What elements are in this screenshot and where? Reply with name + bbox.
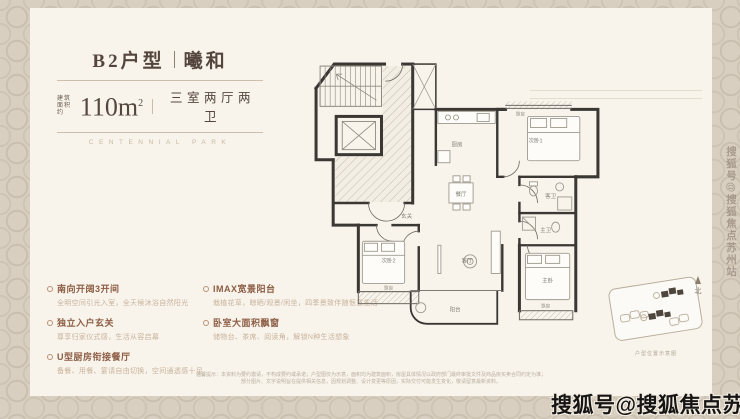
area-prefix: 建筑 面积约	[57, 96, 78, 117]
room-label-master-bath: 主卫	[540, 226, 552, 234]
feature-desc: 全明空间引光入室，全天候沐浴自然阳光	[57, 298, 199, 308]
features-left: 南向开阔3开间 全明空间引光入室，全天候沐浴自然阳光 独立入户玄关 尊享归家仪式…	[47, 282, 199, 384]
room-label-dining: 餐厅	[456, 190, 468, 198]
feature-title: 卧室大面积飘窗	[213, 316, 280, 329]
feature-title-row: 独立入户玄关	[47, 316, 199, 329]
room-label-guest-bath: 客卫	[545, 192, 557, 200]
room-label-bay-master: 飘窗	[541, 303, 551, 310]
unit-title: B2户型 曦和	[57, 46, 263, 73]
title-block: B2户型 曦和 建筑 面积约 110m2 三室两厅两卫 CENTENNIAL P…	[57, 46, 263, 146]
feature-title-row: 南向开阔3开间	[47, 282, 199, 295]
area-number: 110m	[80, 93, 138, 122]
room-label-balcony: 阳台	[449, 306, 461, 314]
feature-item: 独立入户玄关 尊享归家仪式感，生活从容启幕	[47, 316, 199, 342]
minimap-caption: 户型位置示意图	[594, 350, 718, 357]
page: { "header": { "unit_code": "B2户型", "unit…	[0, 0, 740, 416]
feature-item: 南向开阔3开间 全明空间引光入室，全天候沐浴自然阳光	[47, 282, 199, 308]
bullet-icon	[47, 320, 53, 326]
bullet-icon	[47, 354, 53, 360]
disclaimer: 温馨提示：本资料为要约邀请，不构成要约或承诺；户型图仅为示意，面积均为建筑面积，…	[48, 372, 694, 385]
unit-name: 曦和	[184, 46, 228, 73]
compass-label: 北	[695, 287, 702, 295]
area-divider	[152, 99, 153, 114]
bullet-icon	[47, 286, 53, 292]
room-label-living: 客厅	[462, 256, 474, 264]
room-label-bay1: 飘窗	[516, 110, 526, 117]
room-label-foyer: 玄关	[401, 212, 413, 220]
bullet-icon	[203, 320, 209, 326]
layout-text: 三室两厅两卫	[162, 87, 263, 125]
site-minimap: 北	[594, 268, 718, 356]
feature-desc: 尊享归家仪式感，生活从容启幕	[57, 332, 199, 342]
feature-title: U型厨房衔接餐厅	[57, 350, 131, 363]
area-value: 110m2	[80, 92, 143, 120]
room-label-kitchen: 厨房	[451, 141, 463, 149]
divider-line	[57, 80, 263, 81]
area-row: 建筑 面积约 110m2 三室两厅两卫	[57, 87, 263, 125]
room-label-master: 主卧	[542, 277, 554, 285]
bullet-icon	[203, 286, 209, 292]
room-label-bedroom2: 次卧2	[381, 256, 395, 264]
area-prefix-line1: 建筑	[57, 96, 71, 102]
site-boundary	[608, 276, 703, 341]
flue-duct	[413, 64, 436, 109]
elevator	[336, 116, 381, 154]
feature-title: 独立入户玄关	[57, 316, 114, 329]
bay-window-master	[519, 311, 572, 320]
disclaimer-line2: 部分图片、文字说明旨在提供相关信息，因规划调整、设计变更等原因，实际交付可能发生…	[48, 379, 694, 386]
bay-window-2	[358, 292, 418, 304]
room-label-bay2: 飘窗	[384, 285, 394, 292]
subtitle-en: CENTENNIAL PARK	[57, 139, 263, 146]
area-prefix-line2: 面积约	[57, 103, 71, 116]
floorplan-svg: 厨房 餐厅 玄关 次卧1 飘窗 客卫 主卫 主卧 飘窗 客厅 阳台 次卧2 飘窗	[306, 54, 608, 356]
divider-line	[57, 132, 263, 133]
watermark-vertical: 搜狐号@搜狐焦点苏州站	[724, 146, 739, 278]
area-sup: 2	[138, 98, 143, 109]
feature-title: 南向开阔3开间	[57, 282, 120, 295]
feature-title-row: U型厨房衔接餐厅	[47, 350, 199, 363]
title-divider	[174, 51, 175, 68]
watermark-bottom: 搜狐号@搜狐焦点苏州站	[551, 389, 740, 419]
room-label-bedroom1: 次卧1	[528, 137, 542, 145]
unit-code: B2户型	[92, 46, 164, 73]
feature-title: IMAX宽景阳台	[213, 282, 276, 295]
